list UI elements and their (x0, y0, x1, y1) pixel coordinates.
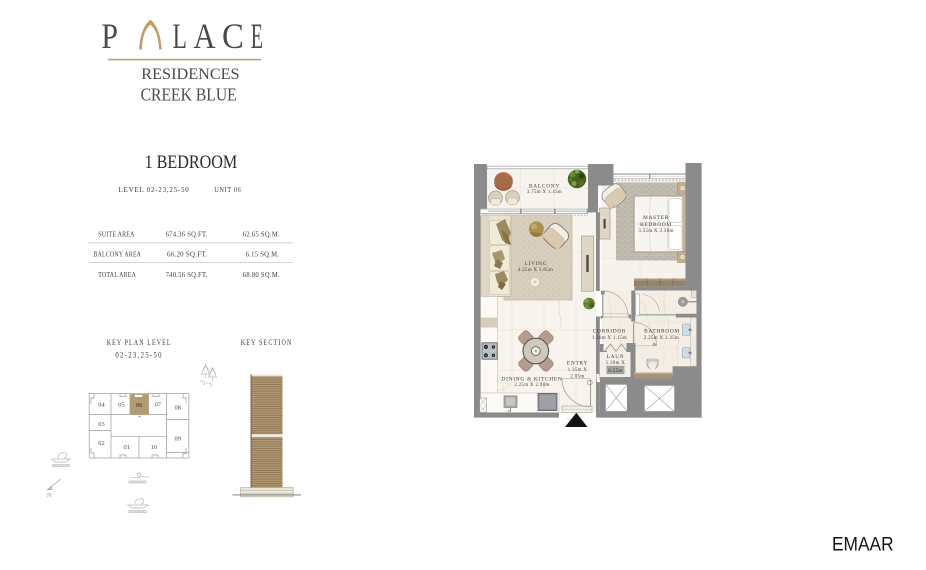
svg-text:740.56 SQ.FT.: 740.56 SQ.FT. (166, 270, 208, 279)
svg-text:09: 09 (175, 436, 181, 443)
svg-text:A: A (194, 16, 216, 56)
svg-text:674.36 SQ.FT.: 674.36 SQ.FT. (166, 230, 208, 239)
svg-text:10: 10 (151, 444, 157, 451)
svg-text:3.55m X 3.30m: 3.55m X 3.30m (638, 229, 673, 234)
svg-text:06: 06 (136, 402, 142, 409)
svg-text:BALCONY: BALCONY (529, 183, 560, 189)
svg-text:1.30m X 1.15m: 1.30m X 1.15m (592, 336, 627, 341)
svg-text:03: 03 (98, 421, 104, 428)
svg-text:2.25m X 3.35m: 2.25m X 3.35m (644, 336, 679, 341)
svg-text:KEY PLAN LEVEL: KEY PLAN LEVEL (107, 337, 172, 347)
svg-text:EMAAR: EMAAR (832, 535, 894, 556)
svg-text:BATHROOM: BATHROOM (644, 328, 680, 334)
svg-text:07: 07 (155, 402, 162, 409)
svg-text:UNIT 06: UNIT 06 (214, 185, 241, 194)
svg-text:02: 02 (98, 440, 104, 447)
svg-text:BEDROOM: BEDROOM (640, 222, 672, 228)
svg-text:2.25m X 2.90m: 2.25m X 2.90m (514, 383, 549, 388)
svg-text:6.15 SQ.M.: 6.15 SQ.M. (246, 249, 280, 258)
svg-text:L: L (173, 16, 187, 56)
svg-text:C: C (222, 16, 244, 56)
svg-text:05: 05 (118, 402, 124, 409)
svg-text:TOTAL AREA: TOTAL AREA (98, 270, 136, 279)
svg-text:E: E (251, 16, 263, 56)
svg-text:CREEK BLUE: CREEK BLUE (141, 85, 237, 105)
svg-text:62.65 SQ.M.: 62.65 SQ.M. (243, 230, 280, 239)
svg-text:08: 08 (175, 404, 181, 411)
svg-text:66.20 SQ.FT.: 66.20 SQ.FT. (167, 249, 207, 258)
svg-text:LAUN: LAUN (607, 354, 625, 360)
svg-text:01: 01 (124, 444, 130, 451)
svg-text:DINING & KITCHEN: DINING & KITCHEN (502, 376, 563, 382)
svg-text:1.35m X: 1.35m X (568, 368, 588, 373)
svg-text:4.25m X 3.85m: 4.25m X 3.85m (518, 268, 553, 273)
svg-text:SUITE AREA: SUITE AREA (98, 230, 135, 239)
svg-text:1.20m X: 1.20m X (606, 361, 626, 366)
svg-text:68.80 SQ.M.: 68.80 SQ.M. (243, 270, 280, 279)
svg-text:N: N (47, 493, 52, 499)
svg-text:MASTER: MASTER (643, 215, 669, 221)
svg-text:P: P (101, 16, 118, 56)
svg-text:04: 04 (98, 402, 105, 409)
svg-text:LEVEL 02-23,25-50: LEVEL 02-23,25-50 (119, 185, 190, 194)
svg-text:LIVING: LIVING (525, 261, 548, 267)
svg-text:02-23,25-50: 02-23,25-50 (115, 349, 162, 359)
svg-text:ENTRY: ENTRY (567, 360, 588, 366)
svg-text:RESIDENCES: RESIDENCES (141, 66, 239, 83)
svg-text:2.05m: 2.05m (570, 374, 584, 379)
svg-text:CORRIDOR: CORRIDOR (593, 328, 626, 334)
svg-text:1 BEDROOM: 1 BEDROOM (145, 152, 238, 173)
svg-text:BALCONY AREA: BALCONY AREA (94, 249, 142, 258)
svg-text:KEY SECTION: KEY SECTION (241, 337, 293, 347)
svg-text:0.55m: 0.55m (608, 369, 622, 374)
svg-text:3.75m X 1.45m: 3.75m X 1.45m (527, 190, 562, 195)
